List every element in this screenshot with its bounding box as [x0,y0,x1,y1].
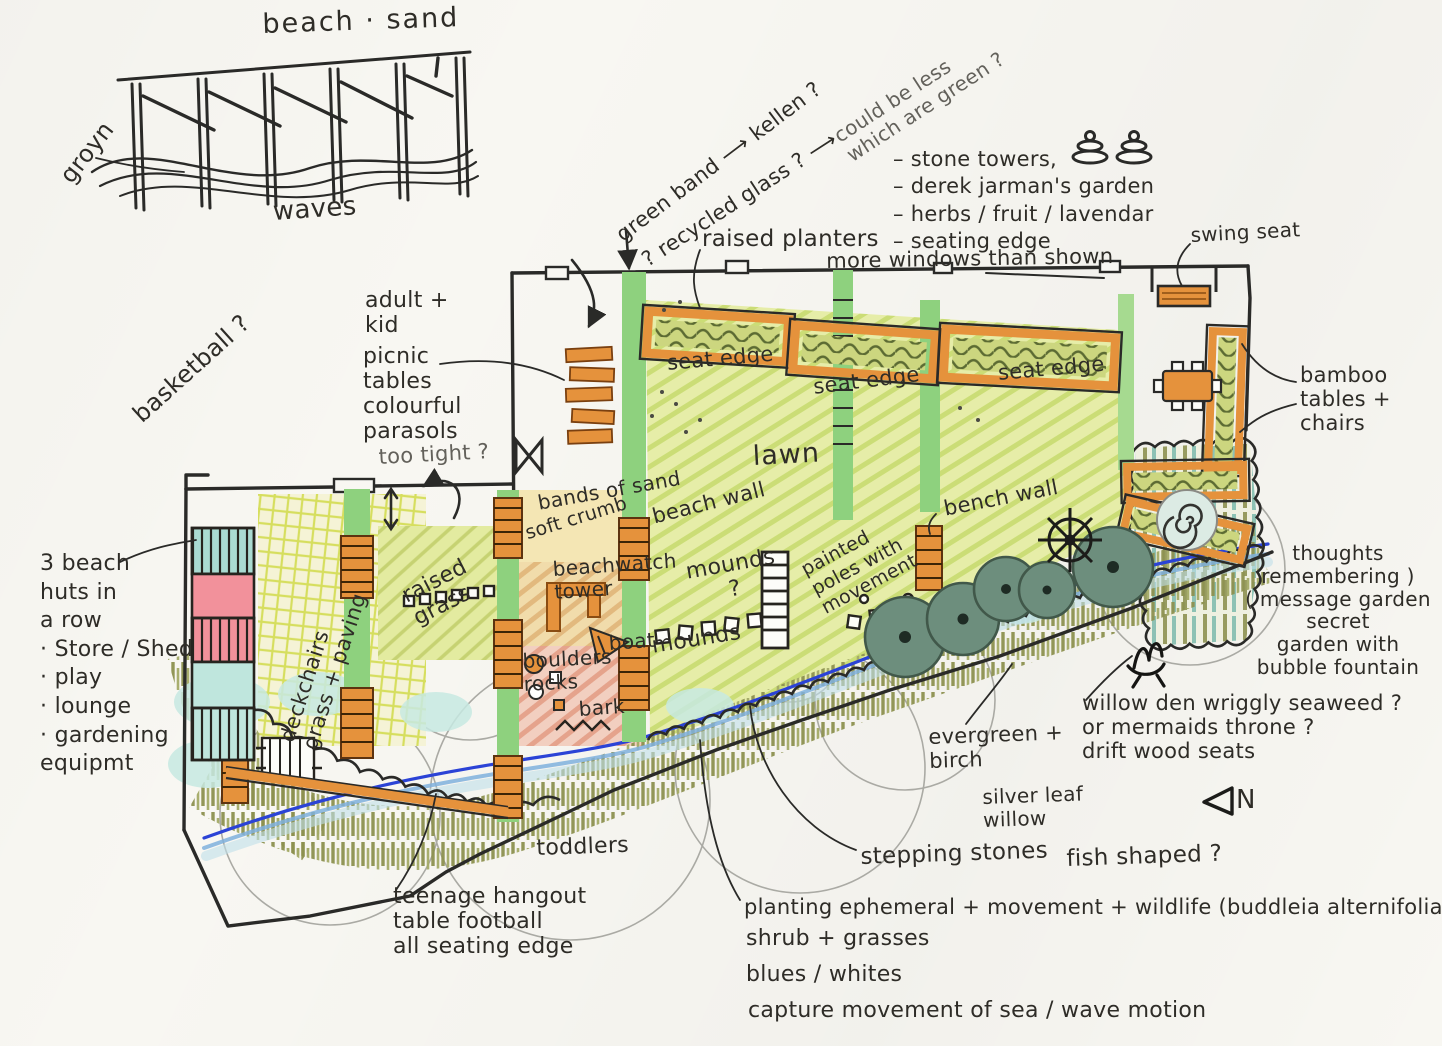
beach-huts [192,528,254,760]
label-waves: waves [272,192,358,227]
note-adult-kid: adult + kid [365,288,449,338]
north-arrow-icon [1204,788,1232,814]
spiral-fountain-icon [1157,490,1217,550]
note-bamboo-tables: bamboo tables + chairs [1300,364,1391,436]
note-shrub-grasses: shrub + grasses [746,926,930,951]
note-beach-huts: 3 beach huts in a row · Store / Shed · p… [40,550,193,779]
note-boat: boat [608,629,656,655]
note-teenage-hangout: teenage hangout table football all seati… [393,884,586,959]
note-willow-den: willow den wriggly seaweed ? or mermaids… [1082,692,1402,764]
note-more-windows: more windows than shown [826,245,1114,274]
note-toddlers: toddlers [536,833,629,861]
picnic-tables [566,347,615,444]
note-lawn: lawn [752,438,821,472]
note-boulders-rocks: boulders rocks [522,645,613,695]
note-planting: planting ephemeral + movement + wildlife… [744,896,1442,920]
note-capture-movement: capture movement of sea / wave motion [748,998,1206,1023]
note-garden-list: – stone towers, – derek jarman's garden … [893,146,1154,255]
groyne-sketch [92,52,478,210]
note-north: N [1236,786,1256,816]
note-fish-shaped: fish shaped ? [1066,841,1223,873]
note-picnic-tables: picnic tables colourful parasols [363,344,462,444]
swing-seat [1152,268,1216,306]
scanned-garden-sketch: beach · sand groyn waves green band ⟶ ke… [0,0,1442,1046]
note-evergreen-birch: evergreen + birch [928,721,1064,774]
note-blues-whites: blues / whites [746,962,902,987]
note-silver-leaf-willow: silver leaf willow [982,782,1084,831]
play-marker-icon [516,440,542,472]
note-bark: bark [578,695,625,721]
note-thoughts: thoughts remembering ) ( message garden … [1238,542,1438,679]
note-beachwatch-tower: beachwatch tower [552,549,679,603]
